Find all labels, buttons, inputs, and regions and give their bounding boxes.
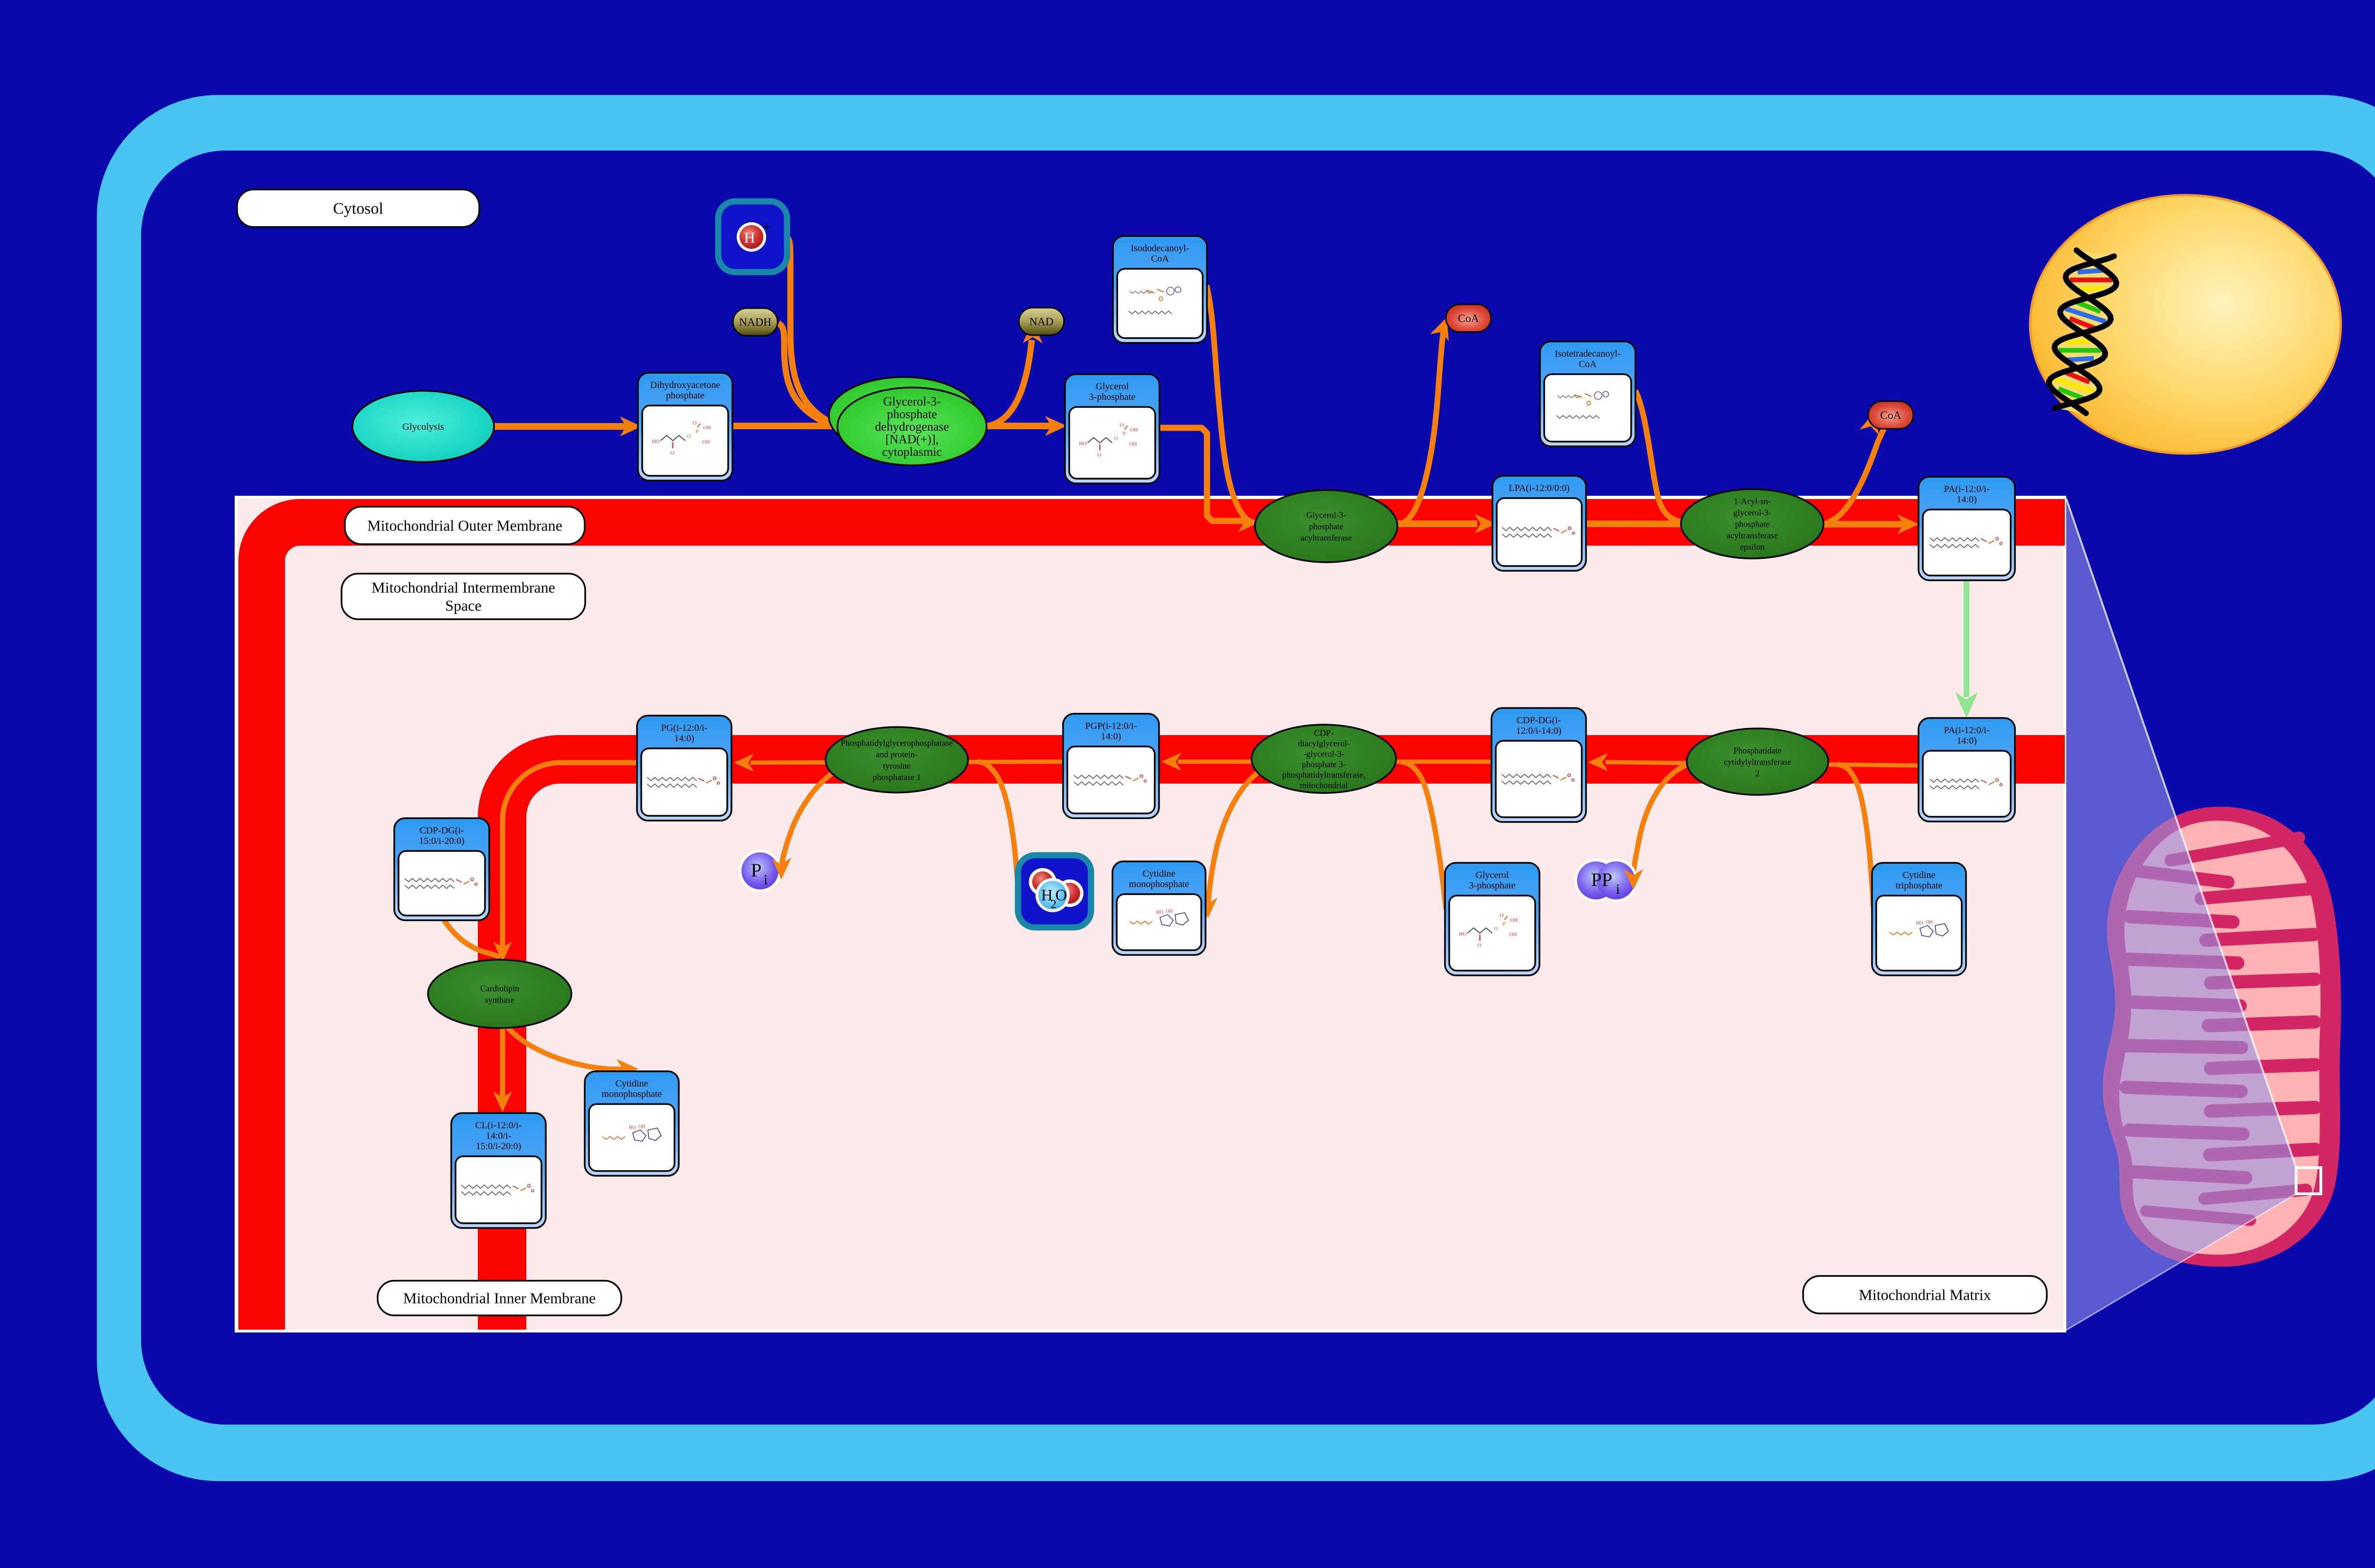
svg-text:14:0): 14:0)	[674, 733, 694, 744]
svg-text:glycerol-3-: glycerol-3-	[1733, 508, 1771, 517]
svg-text:Glycerol-3-: Glycerol-3-	[1306, 510, 1346, 520]
svg-text:Cytidine: Cytidine	[1143, 869, 1176, 879]
svg-text:14:0): 14:0)	[1957, 736, 1976, 746]
svg-text:P: P	[1503, 921, 1506, 927]
svg-text:OH: OH	[1130, 427, 1138, 433]
svg-text:OH: OH	[1166, 909, 1172, 914]
svg-text:PA(i-12:0/i-: PA(i-12:0/i-	[1944, 484, 1990, 494]
svg-text:Glycerol-3-: Glycerol-3-	[883, 395, 940, 408]
svg-text:-glycerol-3-: -glycerol-3-	[1303, 749, 1344, 758]
svg-text:[NAD(+)],: [NAD(+)],	[885, 433, 939, 446]
svg-text:O: O	[1098, 453, 1102, 458]
svg-text:O: O	[1055, 887, 1067, 904]
svg-text:cytidylyltransferase: cytidylyltransferase	[1724, 757, 1791, 766]
svg-text:phosphate: phosphate	[666, 390, 704, 401]
svg-text:O: O	[1114, 436, 1118, 442]
svg-text:PG(i-12:0/i-: PG(i-12:0/i-	[661, 723, 708, 733]
svg-text:Phosphatidate: Phosphatidate	[1734, 746, 1782, 755]
svg-text:Glycerol: Glycerol	[1476, 870, 1509, 880]
svg-text:cytoplasmic: cytoplasmic	[882, 445, 942, 459]
svg-text:OH: OH	[1926, 920, 1932, 925]
svg-text:OH: OH	[1130, 442, 1137, 447]
svg-text:LPA(i-12:0/0:0): LPA(i-12:0/0:0)	[1509, 483, 1569, 493]
svg-text:HO: HO	[652, 439, 660, 444]
svg-text:Isododecanoyl-: Isododecanoyl-	[1130, 243, 1189, 254]
svg-text:phosphatase 1: phosphatase 1	[873, 772, 921, 782]
svg-text:CoA: CoA	[1880, 409, 1901, 422]
svg-text:CDP-DG(i-: CDP-DG(i-	[419, 825, 464, 836]
svg-text:1-Acyl-sn-: 1-Acyl-sn-	[1734, 496, 1771, 506]
svg-text:15:0/i-20:0): 15:0/i-20:0)	[419, 836, 465, 846]
svg-text:synthase: synthase	[485, 995, 514, 1004]
svg-text:HO: HO	[629, 1125, 636, 1131]
svg-text:P: P	[696, 429, 699, 435]
svg-text:O: O	[1500, 913, 1504, 918]
svg-text:14:0): 14:0)	[1957, 494, 1976, 505]
svg-text:Mitochondrial Outer Membrane: Mitochondrial Outer Membrane	[367, 517, 562, 534]
svg-text:CoA: CoA	[1151, 254, 1169, 264]
svg-text:O: O	[687, 434, 691, 439]
svg-text:Cytidine: Cytidine	[1903, 870, 1936, 880]
svg-text:i: i	[1616, 881, 1620, 897]
svg-text:O: O	[1120, 423, 1124, 428]
svg-text:triphosphate: triphosphate	[1896, 880, 1943, 891]
svg-text:phosphatidyltransferase,: phosphatidyltransferase,	[1282, 770, 1365, 779]
svg-text:HO: HO	[1459, 931, 1467, 937]
svg-text:12:0/i-14:0): 12:0/i-14:0)	[1516, 726, 1562, 736]
svg-text:epsilon: epsilon	[1740, 542, 1765, 551]
svg-text:P: P	[1123, 431, 1126, 437]
svg-text:PGP(i-12:0/i-: PGP(i-12:0/i-	[1085, 721, 1137, 731]
svg-text:i: i	[764, 872, 768, 888]
svg-text:3-phosphate: 3-phosphate	[1089, 392, 1136, 402]
svg-text:Mitochondrial Matrix: Mitochondrial Matrix	[1859, 1286, 1991, 1303]
svg-text:acyltransferase: acyltransferase	[1301, 533, 1352, 542]
svg-text:and protein-: and protein-	[876, 749, 917, 759]
svg-text:PP: PP	[1591, 869, 1613, 890]
svg-text:H: H	[744, 229, 755, 246]
svg-text:Space: Space	[445, 597, 481, 614]
svg-text:Mitochondrial Inner Membrane: Mitochondrial Inner Membrane	[403, 1289, 596, 1306]
svg-text:14:0/i-: 14:0/i-	[486, 1131, 511, 1141]
svg-text:Mitochondrial Intermembrane: Mitochondrial Intermembrane	[371, 579, 555, 596]
svg-text:tyrosine: tyrosine	[883, 761, 911, 770]
svg-text:phosphate 3-: phosphate 3-	[1302, 759, 1346, 769]
svg-text:2: 2	[1756, 768, 1760, 778]
svg-text:O: O	[693, 420, 697, 426]
svg-text:Cytidine: Cytidine	[616, 1078, 648, 1089]
svg-text:O: O	[671, 450, 674, 456]
svg-text:O: O	[1494, 926, 1498, 932]
svg-text:Cytosol: Cytosol	[333, 200, 383, 217]
svg-text:phosphate: phosphate	[887, 407, 937, 421]
svg-text:OH: OH	[703, 425, 711, 431]
svg-text:OH: OH	[1510, 917, 1518, 923]
svg-text:dehydrogenase: dehydrogenase	[875, 420, 949, 434]
svg-text:Glycerol: Glycerol	[1096, 381, 1129, 392]
svg-text:OH: OH	[703, 439, 710, 445]
svg-text:+: +	[762, 218, 771, 236]
svg-text:CDP-: CDP-	[1314, 728, 1333, 737]
svg-text:P: P	[751, 860, 761, 881]
svg-text:CoA: CoA	[1579, 359, 1597, 369]
svg-text:Isotetradecanoyl-: Isotetradecanoyl-	[1555, 349, 1621, 359]
svg-text:15:0/i-20:0): 15:0/i-20:0)	[476, 1141, 522, 1152]
svg-text:monophosphate: monophosphate	[1129, 879, 1189, 889]
svg-text:Phosphatidylglycerophosphatase: Phosphatidylglycerophosphatase	[841, 738, 953, 747]
svg-text:Cardiolipin: Cardiolipin	[480, 983, 519, 993]
svg-text:Dihydroxyacetone: Dihydroxyacetone	[650, 380, 721, 390]
svg-text:phosphate: phosphate	[1309, 521, 1344, 531]
svg-text:3-phosphate: 3-phosphate	[1469, 880, 1516, 891]
svg-text:CDP-DG(i-: CDP-DG(i-	[1517, 715, 1561, 726]
svg-text:acyltransferase: acyltransferase	[1727, 530, 1778, 540]
svg-text:CL(i-12:0/i-: CL(i-12:0/i-	[475, 1120, 522, 1131]
svg-text:Glycolysis: Glycolysis	[402, 422, 444, 432]
svg-text:OH: OH	[638, 1124, 645, 1130]
svg-text:CoA: CoA	[1458, 312, 1479, 325]
svg-text:HO: HO	[1079, 441, 1087, 447]
svg-text:14:0): 14:0)	[1101, 731, 1121, 742]
svg-text:NADH: NADH	[739, 316, 771, 329]
svg-text:O: O	[1478, 943, 1482, 948]
svg-text:phosphate: phosphate	[1735, 519, 1770, 529]
svg-text:HO: HO	[1156, 910, 1163, 915]
svg-text:NAD: NAD	[1029, 316, 1054, 328]
svg-text:mitochondrial: mitochondrial	[1300, 780, 1348, 790]
svg-text:monophosphate: monophosphate	[602, 1089, 662, 1099]
svg-text:diacylglycerol-: diacylglycerol-	[1298, 738, 1350, 748]
svg-text:HO: HO	[1916, 921, 1923, 926]
svg-text:OH: OH	[1510, 932, 1517, 937]
svg-text:PA(i-12:0/i-: PA(i-12:0/i-	[1944, 725, 1990, 736]
